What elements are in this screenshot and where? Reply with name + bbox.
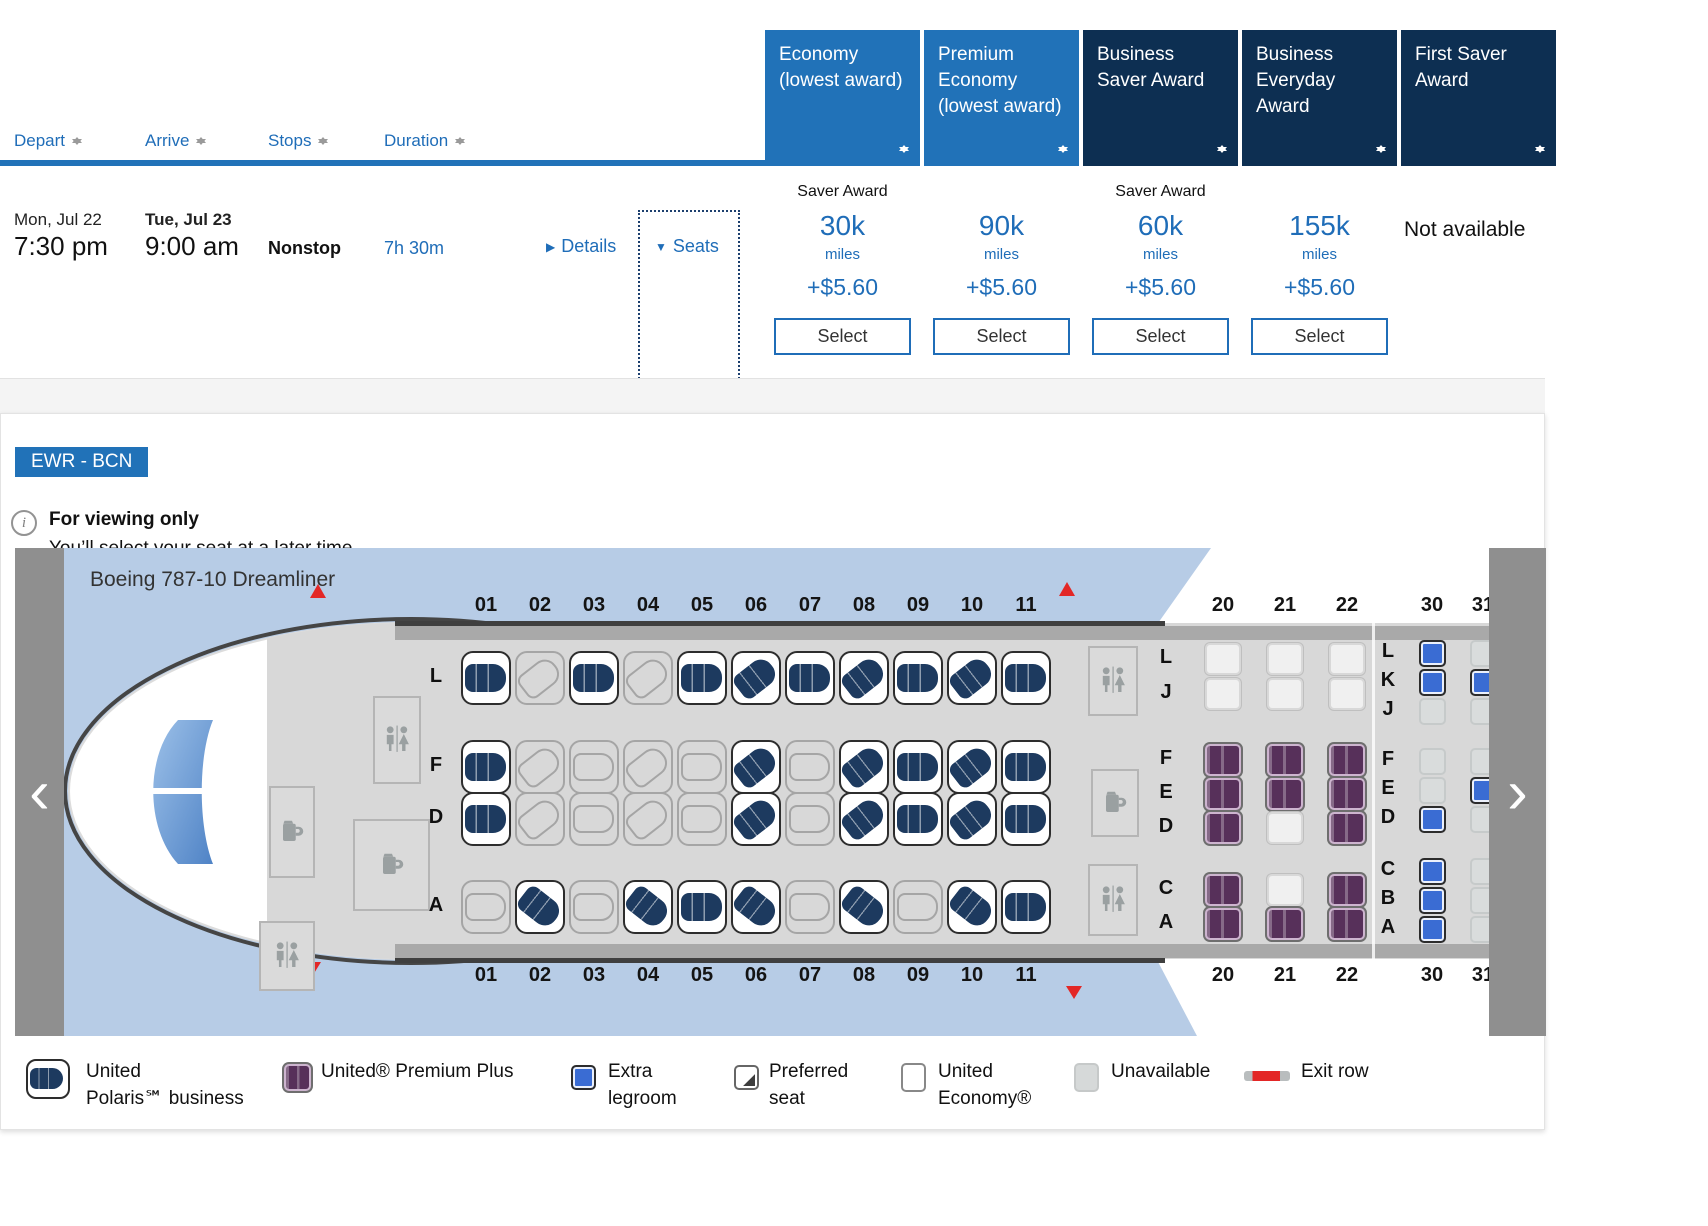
seat-06D — [731, 792, 781, 846]
seat-20E — [1205, 778, 1241, 810]
details-link-label: Details — [561, 236, 616, 257]
column-number-bottom: 22 — [1327, 964, 1367, 987]
flight-results-page: Mon, Jul 22 7:30 pm Tue, Jul 23 9:00 am … — [0, 0, 1708, 1226]
column-number-bottom: 01 — [466, 964, 506, 987]
seat-03L — [569, 651, 619, 705]
seat-10F — [947, 740, 997, 794]
column-number-bottom: 03 — [574, 964, 614, 987]
seat-08A — [839, 880, 889, 934]
polaris-seat-icon — [573, 664, 614, 692]
polaris-seat-icon — [789, 805, 830, 833]
legend-label-line: legroom — [608, 1085, 677, 1112]
seats-link-label: Seats — [673, 236, 719, 257]
seat-20J — [1205, 678, 1241, 710]
row-letter: D — [422, 806, 450, 829]
sort-arrows-icon — [196, 132, 207, 150]
seat-30E — [1419, 777, 1446, 804]
miles-unit-label: miles — [924, 246, 1079, 263]
arrive-time: 9:00 am — [145, 231, 239, 262]
row-letter: A — [422, 894, 450, 917]
legend-label-premium: United® Premium Plus — [321, 1058, 513, 1085]
column-number-bottom: 10 — [952, 964, 992, 987]
seat-02F — [515, 740, 565, 794]
column-number-top: 05 — [682, 594, 722, 617]
fare-column-header-0[interactable]: Economy (lowest award) — [765, 30, 920, 166]
info-icon: i — [11, 510, 37, 536]
polaris-seat-icon — [1005, 753, 1046, 781]
galley-icon — [353, 819, 430, 911]
polaris-seat-icon — [897, 753, 938, 781]
seat-30A — [1419, 916, 1446, 943]
fare-column-header-2[interactable]: Business Saver Award — [1083, 30, 1238, 166]
column-number-top: 11 — [1006, 594, 1046, 617]
sort-header-depart[interactable]: Depart — [14, 131, 83, 151]
sort-header-arrive[interactable]: Arrive — [145, 131, 207, 151]
column-number-top: 04 — [628, 594, 668, 617]
collapse-down-icon: ▼ — [655, 241, 667, 253]
sort-header-label: Depart — [14, 131, 65, 151]
sort-arrows-icon — [899, 140, 910, 158]
polaris-seat-icon — [465, 893, 506, 921]
seat-20D — [1205, 812, 1241, 844]
fees-value: +$5.60 — [924, 274, 1079, 301]
seat-05D — [677, 792, 727, 846]
exitrow-legend-icon — [1244, 1071, 1290, 1081]
seat-20L — [1205, 643, 1241, 675]
sort-header-duration[interactable]: Duration — [384, 131, 466, 151]
polaris-seat-icon — [839, 654, 889, 701]
polaris-seat-icon — [681, 805, 722, 833]
seat-05L — [677, 651, 727, 705]
miles-value: 90k — [924, 210, 1079, 242]
polaris-seat-icon — [30, 1068, 63, 1089]
column-number-top: 21 — [1265, 594, 1305, 617]
seat-21A — [1267, 908, 1303, 940]
seat-05A — [677, 880, 727, 934]
polaris-seat-icon — [681, 753, 722, 781]
fare-column-header-4[interactable]: First Saver Award — [1401, 30, 1556, 166]
legend-label-line: United — [938, 1058, 1031, 1085]
seat-01L — [461, 651, 511, 705]
seat-20A — [1205, 908, 1241, 940]
polaris-seat-icon — [515, 795, 565, 842]
fare-column-header-3[interactable]: Business Everyday Award — [1242, 30, 1397, 166]
seat-30B — [1419, 887, 1446, 914]
seat-08F — [839, 740, 889, 794]
legend-label-line: Extra — [608, 1058, 677, 1085]
legend-label-extra: Extralegroom — [608, 1058, 677, 1112]
polaris-seat-icon — [573, 805, 614, 833]
column-number-bottom: 06 — [736, 964, 776, 987]
seat-09A — [893, 880, 943, 934]
sort-arrows-icon — [318, 132, 329, 150]
miles-unit-label: miles — [1242, 246, 1397, 263]
seat-11L — [1001, 651, 1051, 705]
seat-04F — [623, 740, 673, 794]
seat-10D — [947, 792, 997, 846]
seat-30F — [1419, 748, 1446, 775]
results-separator — [0, 378, 1545, 414]
polaris-seat-icon — [731, 654, 781, 701]
row-letter: E — [1374, 777, 1402, 800]
polaris-legend-icon — [26, 1059, 70, 1099]
polaris-seat-icon — [465, 753, 506, 781]
seat-03D — [569, 792, 619, 846]
fare-column-label: Business Saver Award — [1097, 42, 1224, 94]
seat-03F — [569, 740, 619, 794]
sort-header-label: Duration — [384, 131, 448, 151]
polaris-seat-icon — [789, 893, 830, 921]
polaris-seat-icon — [623, 883, 673, 930]
table-header-rule — [0, 160, 765, 166]
column-number-bottom: 21 — [1265, 964, 1305, 987]
fees-value: +$5.60 — [1242, 274, 1397, 301]
column-number-bottom: 05 — [682, 964, 722, 987]
legend-label-line: Unavailable — [1111, 1058, 1210, 1085]
miles-value: 155k — [1242, 210, 1397, 242]
polaris-seat-icon — [731, 795, 781, 842]
seat-22L — [1329, 643, 1365, 675]
premium-legend-icon — [284, 1064, 311, 1091]
seat-04D — [623, 792, 673, 846]
seat-map: Boeing 787-10 Dreamliner ‹ › 01010202030… — [15, 548, 1546, 1036]
column-number-top: 07 — [790, 594, 830, 617]
polaris-seat-icon — [731, 743, 781, 790]
seat-20F — [1205, 744, 1241, 776]
column-number-bottom: 08 — [844, 964, 884, 987]
saver-award-label: Saver Award — [1083, 183, 1238, 201]
polaris-seat-icon — [623, 743, 673, 790]
polaris-seat-icon — [947, 883, 997, 930]
seat-09F — [893, 740, 943, 794]
legend-label-polaris: UnitedPolaris℠ business — [86, 1058, 244, 1112]
seat-22A — [1329, 908, 1365, 940]
column-number-top: 09 — [898, 594, 938, 617]
seat-01F — [461, 740, 511, 794]
row-letter: F — [1152, 747, 1180, 770]
legend-label-preferred: Preferredseat — [769, 1058, 848, 1112]
seat-11D — [1001, 792, 1051, 846]
legend-label-line: United — [86, 1058, 244, 1085]
seat-10A — [947, 880, 997, 934]
seat-02L — [515, 651, 565, 705]
legend-label-line: United® Premium Plus — [321, 1058, 513, 1085]
expand-right-icon: ▶ — [546, 241, 555, 253]
sort-header-label: Stops — [268, 131, 311, 151]
column-number-top: 22 — [1327, 594, 1367, 617]
seat-30C — [1419, 858, 1446, 885]
column-number-top: 30 — [1412, 594, 1452, 617]
polaris-seat-icon — [1005, 805, 1046, 833]
seat-20C — [1205, 874, 1241, 906]
fees-value: +$5.60 — [765, 274, 920, 301]
seat-30K — [1419, 669, 1446, 696]
polaris-seat-icon — [515, 654, 565, 701]
row-letter: J — [1374, 698, 1402, 721]
row-letter: B — [1374, 887, 1402, 910]
polaris-seat-icon — [623, 795, 673, 842]
row-letter: D — [1374, 806, 1402, 829]
sort-header-stops[interactable]: Stops — [268, 131, 329, 151]
aircraft-name: Boeing 787-10 Dreamliner — [90, 568, 335, 592]
legend-label-line: Polaris℠ business — [86, 1085, 244, 1112]
stops-value: Nonstop — [268, 238, 341, 259]
seat-06A — [731, 880, 781, 934]
seat-06F — [731, 740, 781, 794]
seat-22J — [1329, 678, 1365, 710]
column-number-top: 06 — [736, 594, 776, 617]
seat-07A — [785, 880, 835, 934]
seat-11A — [1001, 880, 1051, 934]
row-letter: C — [1152, 877, 1180, 900]
sort-arrows-icon — [1217, 140, 1228, 158]
legend-label-line: Exit row — [1301, 1058, 1369, 1085]
polaris-seat-icon — [789, 753, 830, 781]
polaris-seat-icon — [1005, 893, 1046, 921]
row-letter: F — [1374, 748, 1402, 771]
economy-legend-icon — [901, 1063, 926, 1092]
fare-column-label: Premium Economy (lowest award) — [938, 42, 1065, 120]
column-number-bottom: 11 — [1006, 964, 1046, 987]
seat-21D — [1267, 812, 1303, 844]
depart-date: Mon, Jul 22 — [14, 210, 102, 230]
seat-map-panel: EWR - BCN i For viewing only You’ll sele… — [0, 413, 1545, 1130]
unavailable-legend-icon — [1074, 1063, 1099, 1092]
seat-05F — [677, 740, 727, 794]
seat-21E — [1267, 778, 1303, 810]
seat-30D — [1419, 806, 1446, 833]
legend-label-economy: UnitedEconomy® — [938, 1058, 1031, 1112]
seat-22E — [1329, 778, 1365, 810]
select-button[interactable]: Select — [933, 318, 1070, 355]
seat-22F — [1329, 744, 1365, 776]
sort-arrows-icon — [1535, 140, 1546, 158]
seat-08L — [839, 651, 889, 705]
fare-column-label: First Saver Award — [1415, 42, 1542, 94]
seat-02D — [515, 792, 565, 846]
row-letter: K — [1374, 669, 1402, 692]
seatmap-background — [15, 548, 1546, 1036]
lavatory-icon — [1088, 864, 1138, 936]
scroll-left-button[interactable]: ‹ — [15, 548, 64, 1036]
column-number-top: 01 — [466, 594, 506, 617]
polaris-seat-icon — [897, 664, 938, 692]
miles-value: 30k — [765, 210, 920, 242]
column-number-bottom: 02 — [520, 964, 560, 987]
column-number-top: 20 — [1203, 594, 1243, 617]
seat-07L — [785, 651, 835, 705]
seat-07D — [785, 792, 835, 846]
lavatory-icon — [1088, 646, 1138, 716]
row-letter: F — [422, 754, 450, 777]
seat-21F — [1267, 744, 1303, 776]
preferred-legend-icon — [734, 1065, 759, 1090]
miles-value: 60k — [1083, 210, 1238, 242]
column-number-bottom: 20 — [1203, 964, 1243, 987]
seat-01D — [461, 792, 511, 846]
seat-11F — [1001, 740, 1051, 794]
row-letter: E — [1152, 781, 1180, 804]
legend-label-unavailable: Unavailable — [1111, 1058, 1210, 1085]
column-number-bottom: 07 — [790, 964, 830, 987]
polaris-seat-icon — [623, 654, 673, 701]
sort-arrows-icon — [455, 132, 466, 150]
galley-icon — [1091, 769, 1139, 837]
column-number-bottom: 09 — [898, 964, 938, 987]
polaris-seat-icon — [947, 654, 997, 701]
miles-unit-label: miles — [765, 246, 920, 263]
row-letter: L — [422, 665, 450, 688]
sort-arrows-icon — [1058, 140, 1069, 158]
polaris-seat-icon — [465, 805, 506, 833]
row-letter: C — [1374, 858, 1402, 881]
extra-legend-icon — [571, 1065, 596, 1090]
polaris-seat-icon — [839, 795, 889, 842]
column-number-top: 08 — [844, 594, 884, 617]
sort-arrows-icon — [72, 132, 83, 150]
details-link[interactable]: ▶ Details — [546, 236, 616, 257]
column-number-top: 02 — [520, 594, 560, 617]
seat-03A — [569, 880, 619, 934]
seat-30J — [1419, 698, 1446, 725]
seat-22D — [1329, 812, 1365, 844]
seat-04L — [623, 651, 673, 705]
seat-04A — [623, 880, 673, 934]
miles-unit-label: miles — [1083, 246, 1238, 263]
seat-09L — [893, 651, 943, 705]
seats-link[interactable]: ▼ Seats — [655, 236, 719, 257]
not-available-text: Not available — [1404, 218, 1564, 242]
column-number-bottom: 30 — [1412, 964, 1452, 987]
polaris-seat-icon — [839, 883, 889, 930]
seat-07F — [785, 740, 835, 794]
column-number-top: 03 — [574, 594, 614, 617]
column-number-bottom: 04 — [628, 964, 668, 987]
seat-09D — [893, 792, 943, 846]
arrive-date: Tue, Jul 23 — [145, 210, 232, 230]
legend-label-line: seat — [769, 1085, 848, 1112]
select-button[interactable]: Select — [774, 318, 911, 355]
row-letter: A — [1152, 911, 1180, 934]
polaris-seat-icon — [897, 893, 938, 921]
polaris-seat-icon — [947, 795, 997, 842]
polaris-seat-icon — [573, 893, 614, 921]
row-letter: L — [1152, 646, 1180, 669]
select-button[interactable]: Select — [1251, 318, 1388, 355]
viewing-only-title: For viewing only — [49, 509, 199, 531]
polaris-seat-icon — [947, 743, 997, 790]
route-badge: EWR - BCN — [15, 447, 148, 477]
polaris-seat-icon — [515, 883, 565, 930]
polaris-seat-icon — [789, 664, 830, 692]
fare-column-header-1[interactable]: Premium Economy (lowest award) — [924, 30, 1079, 166]
select-button[interactable]: Select — [1092, 318, 1229, 355]
row-letter: J — [1152, 681, 1180, 704]
row-letter: A — [1374, 916, 1402, 939]
seat-01A — [461, 880, 511, 934]
fare-column-label: Economy (lowest award) — [779, 42, 906, 94]
polaris-seat-icon — [573, 753, 614, 781]
seat-10L — [947, 651, 997, 705]
fees-value: +$5.60 — [1083, 274, 1238, 301]
galley-icon — [269, 786, 315, 878]
seat-06L — [731, 651, 781, 705]
polaris-seat-icon — [731, 883, 781, 930]
legend-label-exitrow: Exit row — [1301, 1058, 1369, 1085]
seat-21C — [1267, 874, 1303, 906]
seat-02A — [515, 880, 565, 934]
polaris-seat-icon — [681, 893, 722, 921]
row-letter: D — [1152, 815, 1180, 838]
polaris-seat-icon — [465, 664, 506, 692]
column-number-top: 10 — [952, 594, 992, 617]
polaris-seat-icon — [897, 805, 938, 833]
polaris-seat-icon — [1005, 664, 1046, 692]
sort-arrows-icon — [1376, 140, 1387, 158]
seat-08D — [839, 792, 889, 846]
lavatory-icon — [259, 921, 315, 991]
seat-30L — [1419, 640, 1446, 667]
saver-award-label: Saver Award — [765, 183, 920, 201]
seat-21J — [1267, 678, 1303, 710]
seat-21L — [1267, 643, 1303, 675]
seat-22C — [1329, 874, 1365, 906]
legend-label-line: Preferred — [769, 1058, 848, 1085]
fare-column-label: Business Everyday Award — [1256, 42, 1383, 120]
duration-value: 7h 30m — [384, 238, 444, 259]
polaris-seat-icon — [839, 743, 889, 790]
lavatory-icon — [373, 696, 421, 784]
legend-label-line: Economy® — [938, 1085, 1031, 1112]
sort-header-label: Arrive — [145, 131, 189, 151]
polaris-seat-icon — [515, 743, 565, 790]
polaris-seat-icon — [681, 664, 722, 692]
row-letter: L — [1374, 640, 1402, 663]
scroll-right-button[interactable]: › — [1489, 548, 1546, 1036]
depart-time: 7:30 pm — [14, 231, 108, 262]
